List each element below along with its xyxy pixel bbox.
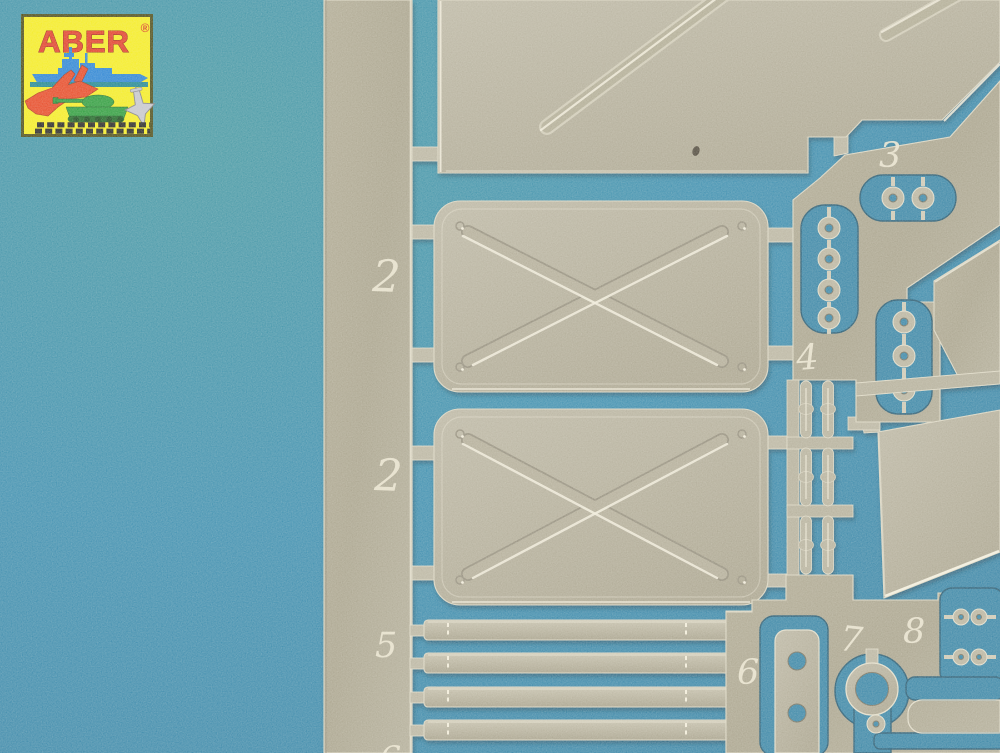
- photo-grain-overlay: [0, 0, 1000, 753]
- product-photo: 2 2 3 4 5 6 7 8 6 ABER ®: [0, 0, 1000, 753]
